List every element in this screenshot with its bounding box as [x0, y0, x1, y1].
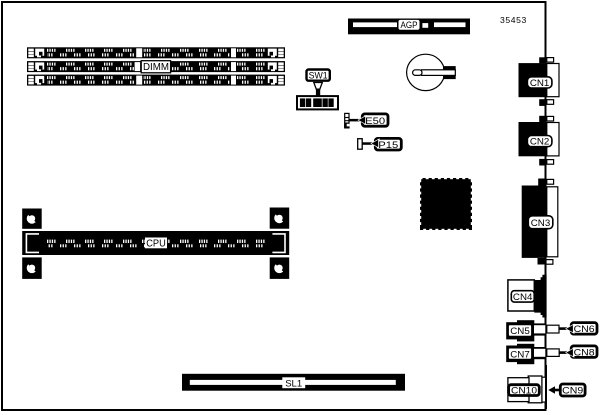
svg-text:CPU: CPU [146, 239, 166, 250]
svg-text:CN6: CN6 [574, 324, 595, 335]
svg-text:CN7: CN7 [510, 348, 530, 359]
svg-text:CN5: CN5 [510, 325, 530, 336]
svg-text:CN2: CN2 [530, 136, 550, 147]
svg-text:CN3: CN3 [531, 217, 551, 228]
svg-text:SW1: SW1 [309, 70, 328, 80]
svg-text:CN10: CN10 [511, 386, 537, 397]
svg-text:CN1: CN1 [530, 77, 550, 88]
svg-text:P15: P15 [378, 140, 398, 151]
svg-text:CN8: CN8 [574, 347, 595, 358]
svg-text:AGP: AGP [401, 20, 418, 30]
svg-text:CN4: CN4 [513, 291, 533, 302]
svg-text:CN9: CN9 [562, 386, 583, 397]
svg-text:SL1: SL1 [285, 378, 302, 389]
svg-text:35453: 35453 [500, 15, 527, 25]
svg-text:DIMM: DIMM [143, 62, 169, 73]
svg-text:E50: E50 [365, 116, 385, 127]
